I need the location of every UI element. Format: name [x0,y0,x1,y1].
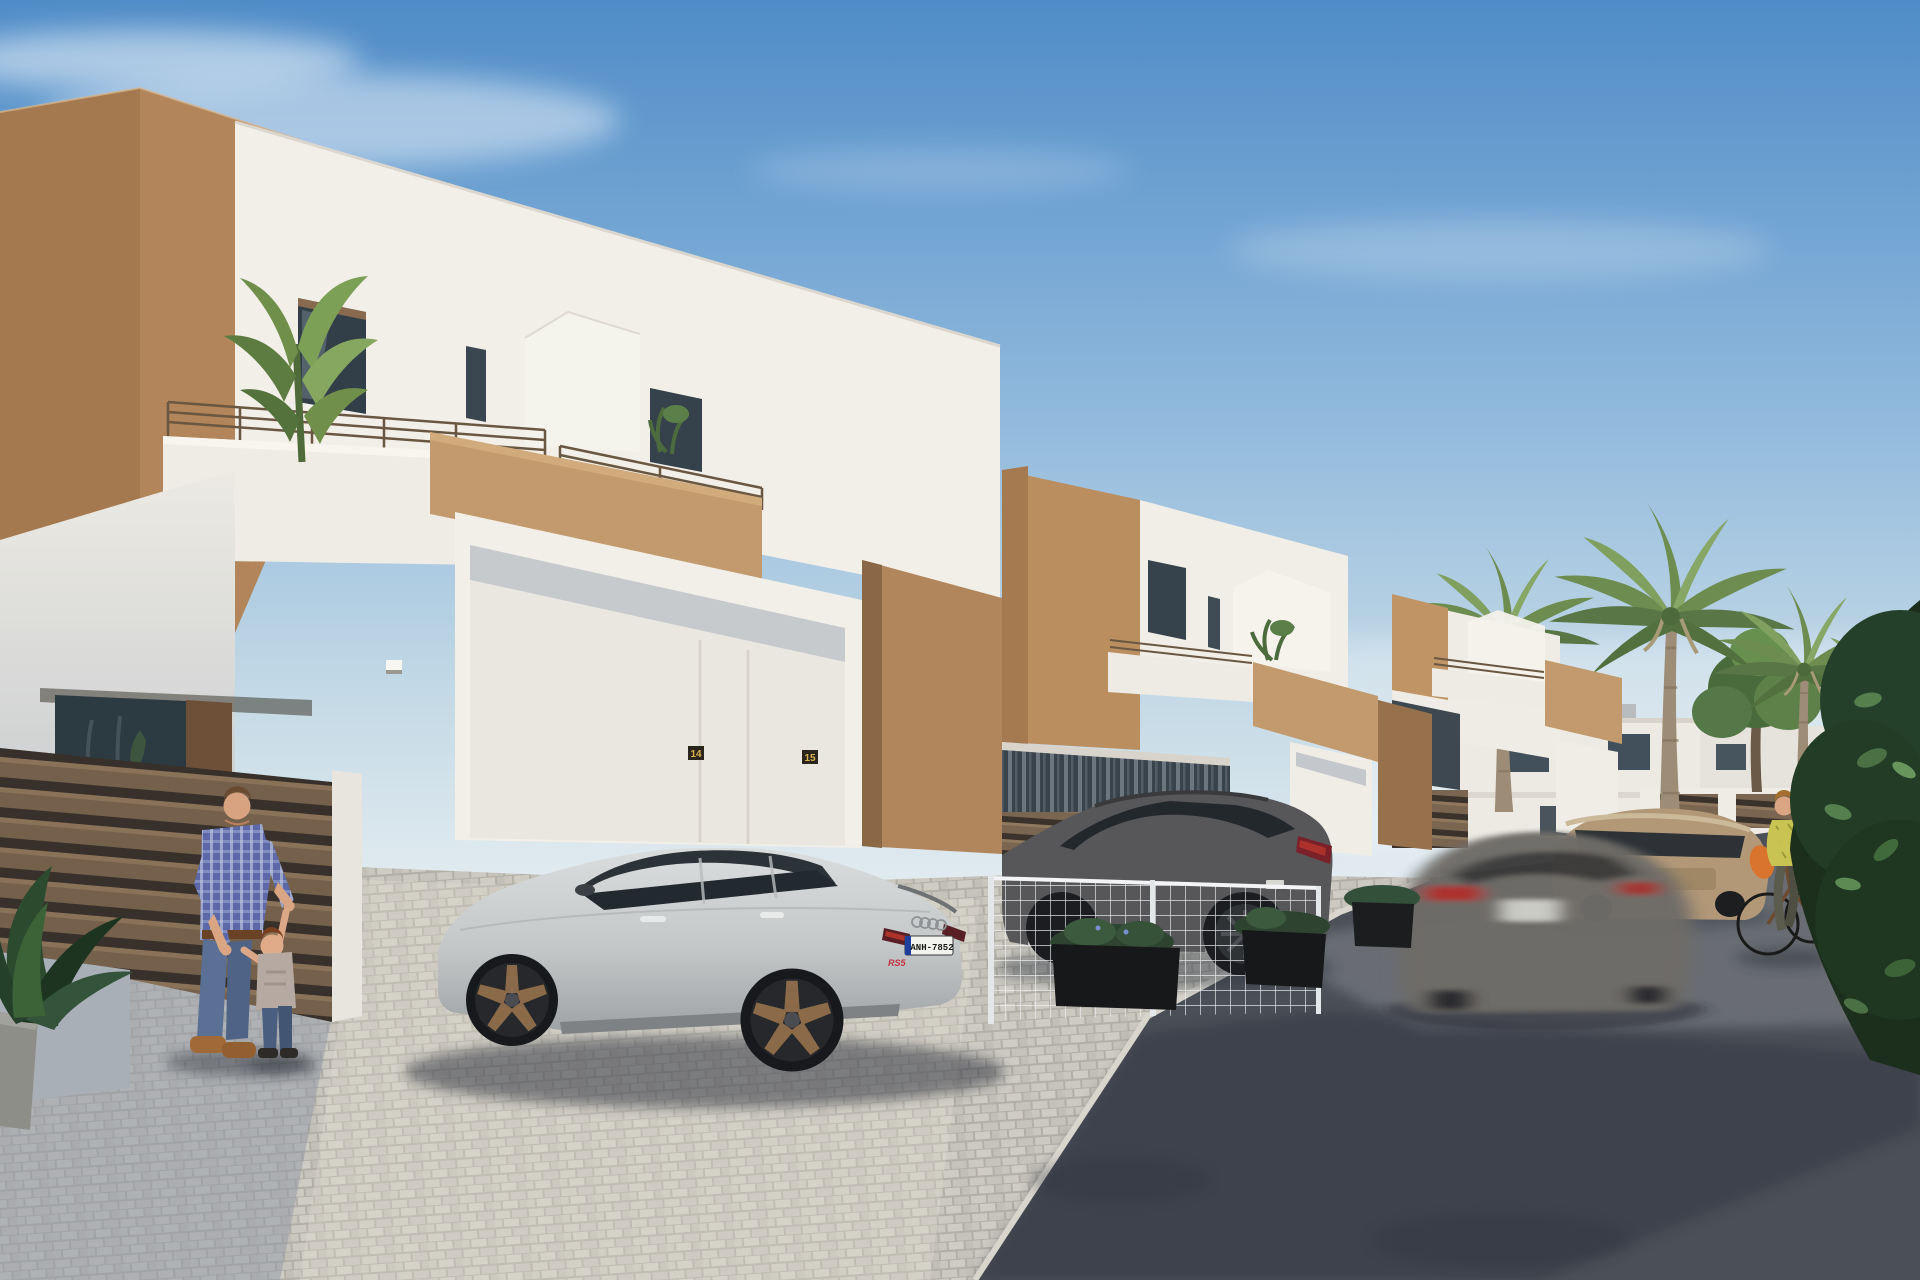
rear-wheel [740,968,843,1071]
house-number-15: 15 [804,753,816,764]
door-handle [640,916,666,922]
rs5-badge: RS5 [888,958,907,968]
license-plate: ANH-7852 [905,936,954,955]
shoe [222,1042,256,1058]
scene-canvas: 14 15 [0,0,1920,1280]
door-handle [760,912,784,918]
jeans [278,1006,292,1052]
planter-box [1234,907,1330,988]
planter-box [1344,885,1420,948]
cloud [750,148,1130,192]
upper-window-small [1208,596,1220,650]
cloud [1230,220,1770,280]
license-plate-text: ANH-7852 [910,943,953,953]
belt [202,930,262,939]
house-number-plaque-15: 15 [802,750,818,764]
jeans [262,1008,278,1052]
shoe [280,1048,298,1058]
blurred-plate [1502,900,1558,921]
wall-lamp-shadow [386,670,402,674]
taillight [1618,882,1660,895]
tan-jamb [1378,700,1432,850]
fence-pillar [332,770,362,1022]
villa-window [1716,744,1746,770]
planter-box [1050,918,1180,1010]
house-number-14: 14 [690,749,702,760]
front-wheel [466,954,558,1046]
upper-window [1148,560,1186,640]
wall-lamp [386,660,402,670]
t-shirt [256,952,296,1010]
shoe [190,1036,226,1053]
taillight [1424,886,1482,901]
head [224,793,251,820]
shoe [258,1048,278,1058]
leg [1778,864,1782,930]
upper-window-small [466,346,486,422]
mirror [575,884,595,896]
architectural-rendering: 14 15 [0,0,1920,1280]
house-number-plaque-14: 14 [688,746,704,760]
tan-jamb [862,560,1002,854]
